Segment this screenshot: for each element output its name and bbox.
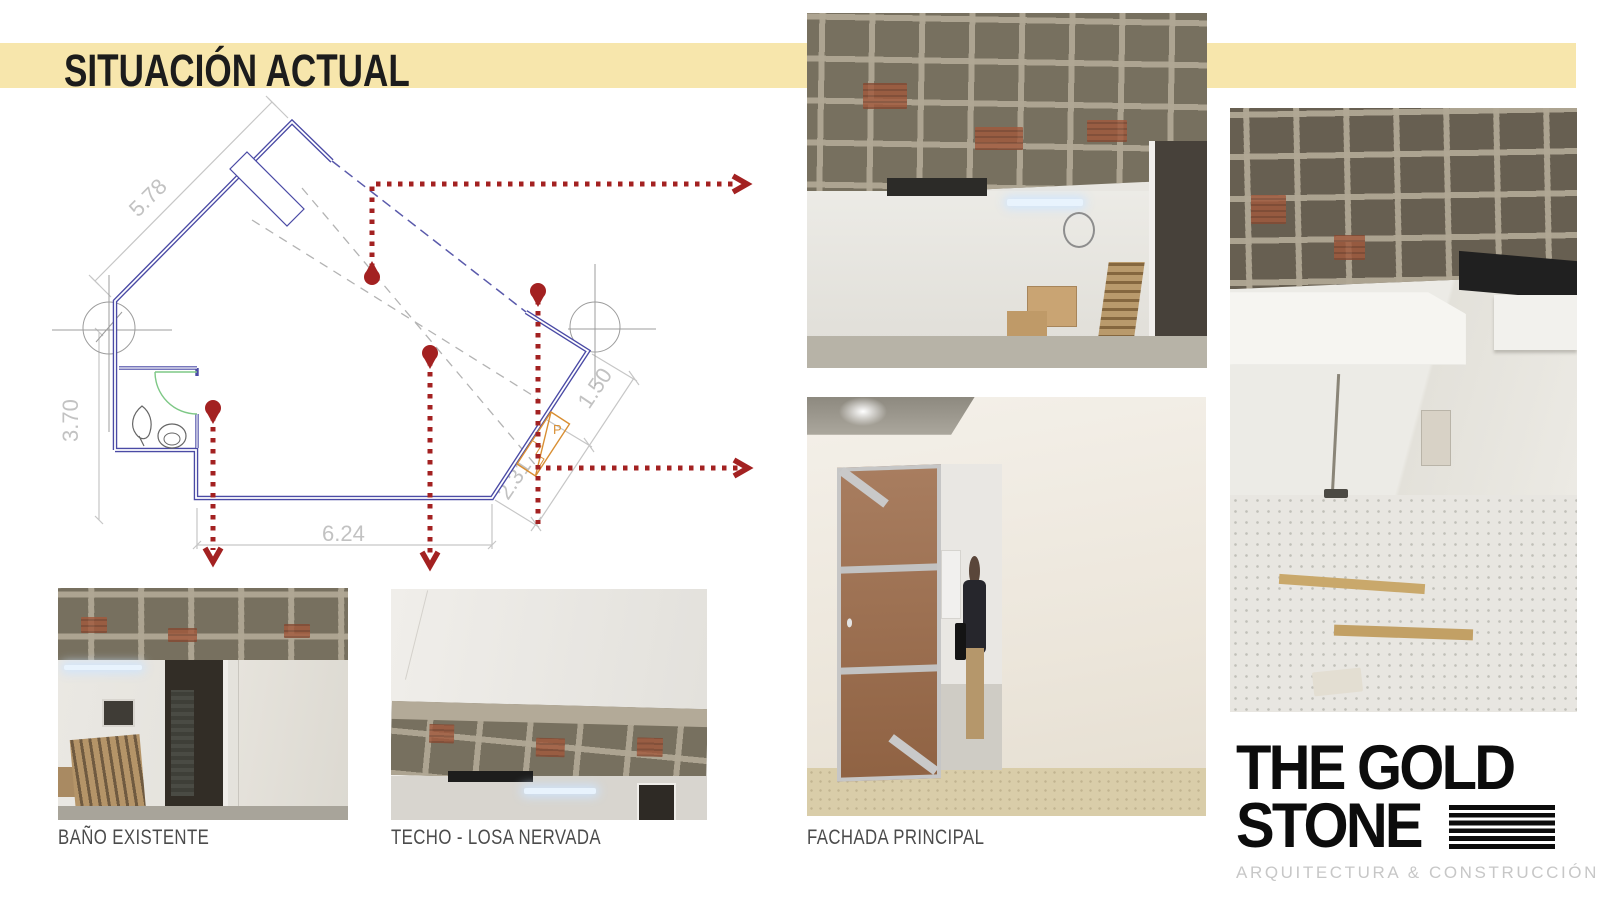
photo-ribbed-slab <box>391 589 707 820</box>
photo-ceiling-general <box>807 13 1207 368</box>
arrow-line-ceiling <box>372 184 737 268</box>
fluorescent-tube <box>524 788 597 794</box>
photo-bathroom <box>58 588 348 820</box>
corner-wall <box>238 660 348 806</box>
caption-facade: FACHADA PRINCIPAL <box>807 826 984 850</box>
dim-bottom: 6.24 <box>322 521 365 546</box>
door-opening <box>933 464 1003 770</box>
open-door-leaf <box>837 464 941 781</box>
fluorescent-tube <box>1007 199 1083 205</box>
annotation-arrows <box>205 176 748 566</box>
person-legs <box>966 648 984 740</box>
sink-icon <box>133 406 152 446</box>
wall-patch <box>1421 410 1451 466</box>
ceiling-area <box>807 13 1207 198</box>
logo-stripes-icon <box>1449 805 1555 849</box>
corner-brace <box>838 467 889 508</box>
page-title: SITUACIÓN ACTUAL <box>64 45 410 97</box>
floor-plan: 5.78 3.70 6.24 1.50 2.31 <box>40 95 770 585</box>
door-label: P <box>553 422 562 437</box>
corner-brace <box>888 735 939 776</box>
toilet-icon <box>158 424 186 448</box>
tiles <box>171 690 194 796</box>
exposed-slab-band <box>391 700 707 782</box>
concrete-floor <box>1230 495 1577 712</box>
photo-interior-tall <box>1230 108 1577 712</box>
arrowhead-right-1 <box>733 176 747 192</box>
ceiling-area <box>58 588 348 660</box>
bathroom <box>133 372 197 448</box>
photo-facade <box>807 397 1206 816</box>
slide: SITUACIÓN ACTUAL 5.78 3.70 6.24 1.50 2.3… <box>0 0 1600 900</box>
poster <box>941 550 961 619</box>
logo-tagline: ARQUITECTURA & CONSTRUCCIÓN <box>1236 863 1581 883</box>
bath-doorway <box>165 660 228 811</box>
caption-ribbed-slab: TECHO - LOSA NERVADA <box>391 826 601 850</box>
window-leaf <box>230 152 304 226</box>
dim-left: 3.70 <box>58 399 83 442</box>
dim-top-left: 5.78 <box>124 174 172 222</box>
walls <box>115 122 588 498</box>
soffit-box <box>1230 292 1466 364</box>
paper-debris <box>1312 667 1363 696</box>
arrow-line-facade <box>538 300 738 524</box>
doorway <box>637 783 676 820</box>
bath-door-arc <box>155 372 197 414</box>
ceiling-strip <box>807 397 975 435</box>
dimension-lines <box>89 96 639 549</box>
doorway <box>1149 141 1207 350</box>
soffit-box-right <box>1494 295 1577 349</box>
light-glow <box>839 397 887 426</box>
ac-unit <box>887 178 987 196</box>
fluorescent-tube <box>64 665 142 671</box>
floor <box>807 336 1207 368</box>
door-handle <box>847 618 853 627</box>
company-logo: THE GOLD STONE ARQUITECTURA & CONSTRUCCI… <box>1236 740 1581 883</box>
handbag <box>955 623 966 660</box>
arrowhead-down-1 <box>205 548 221 562</box>
annotation-dots <box>205 261 546 424</box>
ac-vent <box>448 771 533 781</box>
caption-bathroom: BAÑO EXISTENTE <box>58 826 209 850</box>
arrowhead-down-2 <box>422 552 438 566</box>
wall-box <box>102 699 135 726</box>
cable-loop <box>1063 212 1095 248</box>
person-torso <box>963 580 986 653</box>
logo-line1: THE GOLD <box>1236 740 1553 798</box>
logo-line2: STONE <box>1236 798 1421 856</box>
floor <box>58 806 348 820</box>
